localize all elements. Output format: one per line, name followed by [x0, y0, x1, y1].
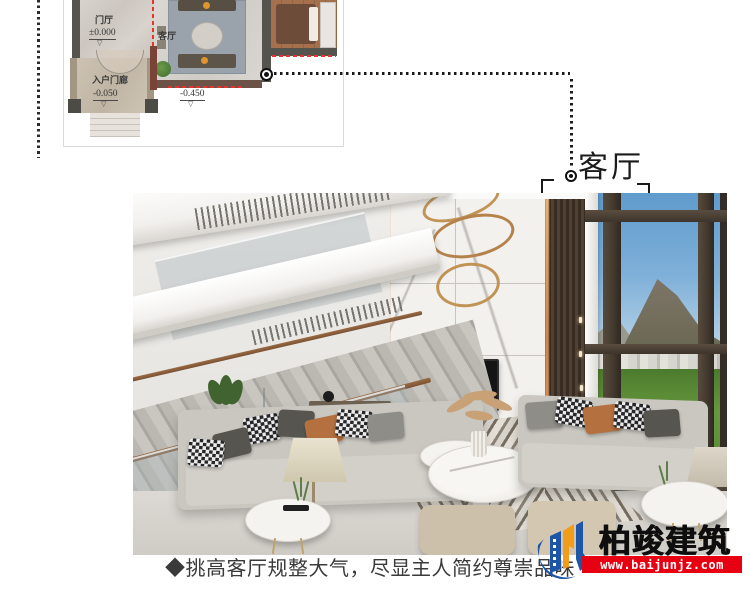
callout-anchor-dot: [260, 68, 273, 81]
logo-url-bar: www.baijunjz.com: [582, 556, 742, 573]
plan-elevation-living: -0.450: [180, 89, 205, 101]
plan-entry-steps: [90, 113, 140, 137]
plan-label-porch: 入户门廊: [92, 75, 128, 85]
plan-side-table: [157, 40, 166, 49]
plan-level-mark: ▽: [188, 101, 193, 108]
wall-light: [579, 351, 582, 357]
throw-pillow: [367, 411, 405, 442]
callout-bracket-left: [541, 179, 554, 193]
plan-bed-pillow: [309, 7, 318, 41]
side-table-right: [641, 481, 727, 527]
plan-plant: [155, 61, 171, 77]
throw-pillow: [187, 438, 226, 467]
decor-plant-sprig: [300, 477, 302, 497]
logo-company-name: 柏竣建筑: [599, 524, 747, 558]
plan-wall: [150, 46, 157, 90]
plan-elevation-porch: -0.050: [93, 89, 118, 101]
callout-end-dot: [565, 170, 577, 182]
plan-highlight-dashed-line: [152, 0, 154, 48]
window-mullion: [585, 344, 727, 354]
plan-level-mark: ▽: [97, 40, 102, 47]
plan-column: [145, 99, 158, 113]
callout-dotted-line-vertical: [570, 79, 573, 169]
plan-level-mark: ▽: [101, 101, 106, 108]
page: 门厅 ±0.000 ▽ 客厅 入户门廊 -0.050 ▽ -0.450 ▽ 客厅: [0, 0, 750, 590]
marketing-caption: ◆挑高客厅规整大气，尽显主人简约尊崇品味: [165, 556, 595, 582]
living-room-render-photo: [133, 193, 727, 555]
callout-dotted-line-horizontal: [274, 72, 570, 75]
plan-highlight-dashed-line: [168, 86, 244, 88]
wall-light: [580, 385, 583, 391]
logo-url-text: www.baijunjz.com: [600, 558, 724, 572]
plan-label-living: 客厅: [158, 31, 176, 41]
page-border-dotted-line: [37, 0, 40, 158]
decor-plant-sprig: [666, 461, 668, 481]
window-mullion: [585, 210, 727, 222]
plan-elevation-foyer: ±0.000: [89, 28, 116, 40]
plan-highlight-dashed-line: [272, 55, 336, 57]
ottoman: [420, 505, 515, 555]
table-lamp-stem: [312, 482, 315, 504]
wall-light: [579, 317, 582, 323]
plan-label-foyer: 门厅: [95, 15, 113, 25]
ribbed-vase: [471, 431, 487, 457]
plan-wall: [72, 0, 80, 58]
sofa-right: [518, 395, 708, 494]
plan-column: [68, 99, 81, 113]
table-lamp-black: [323, 391, 334, 402]
plan-round-table: [191, 22, 223, 50]
plan-decor-dot: [201, 57, 208, 64]
plan-bath-fixtures: [320, 2, 336, 48]
callout-room-label: 客厅: [578, 151, 644, 185]
plan-decor-dot: [203, 2, 210, 9]
throw-pillow: [643, 409, 681, 438]
decor-tray: [283, 505, 309, 511]
table-lamp-shade: [283, 438, 347, 482]
